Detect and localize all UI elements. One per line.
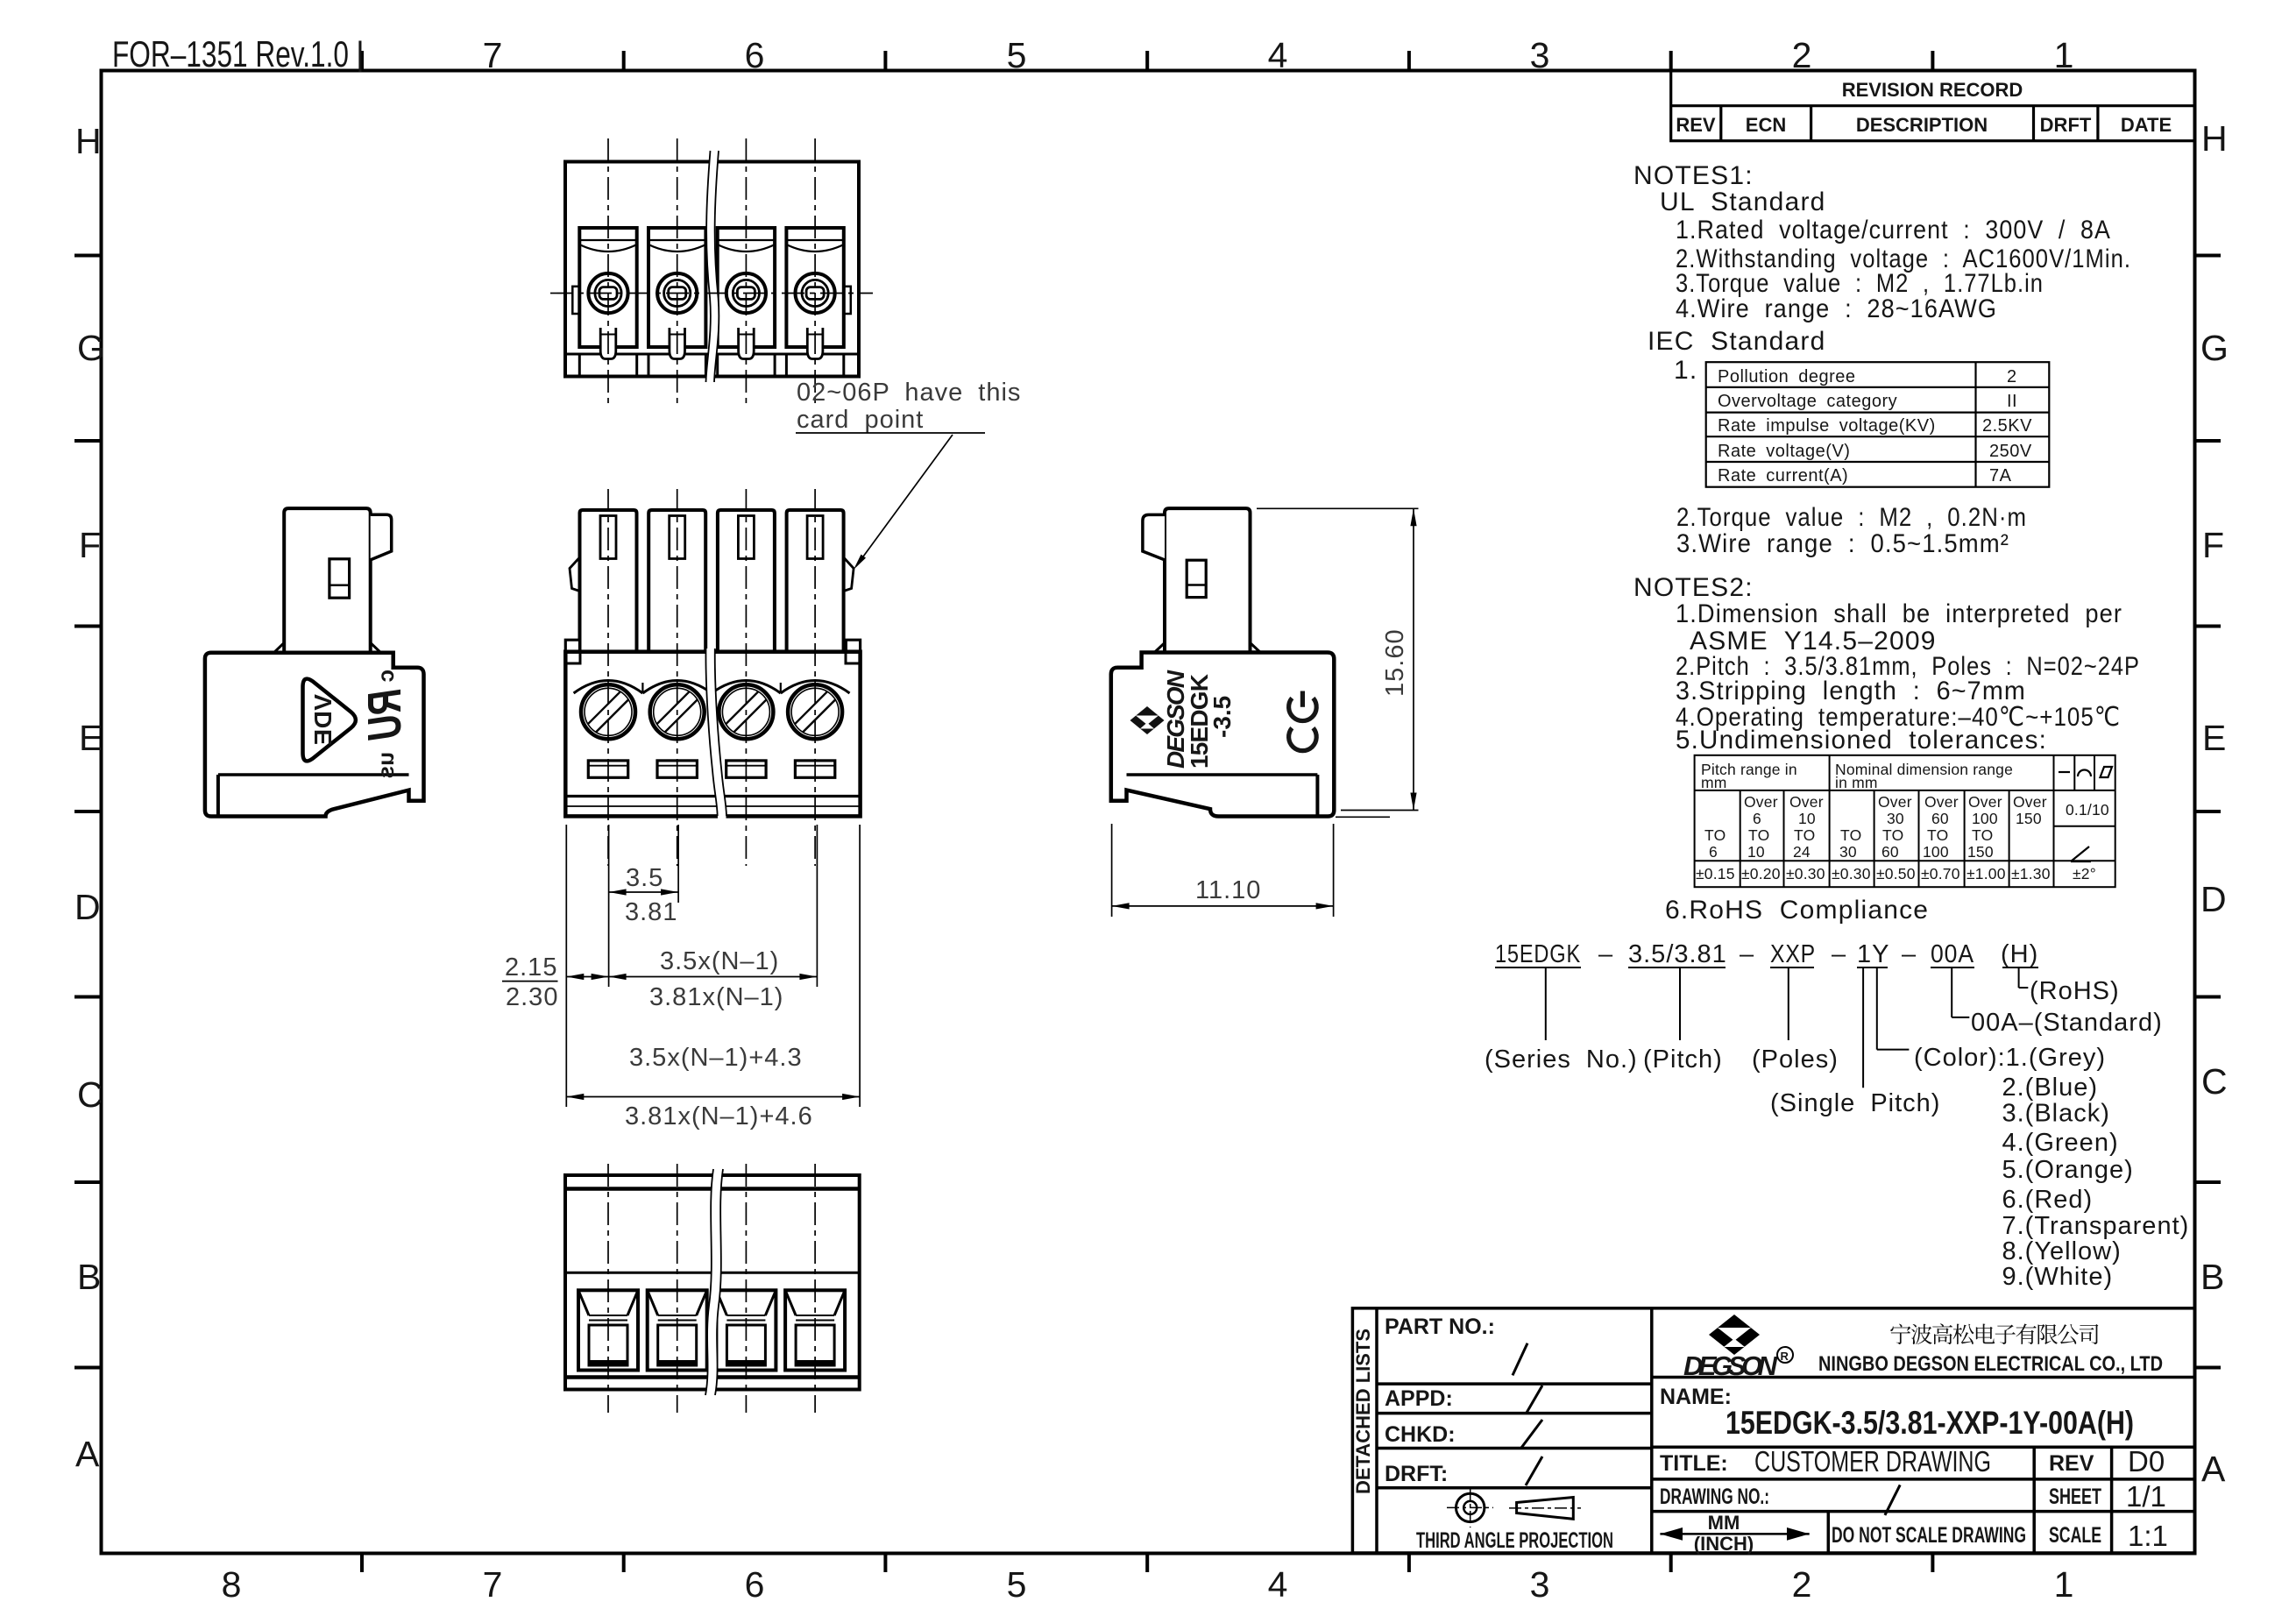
svg-text:TO: TO [1972, 826, 1993, 844]
svg-text:DESCRIPTION: DESCRIPTION [1856, 114, 1988, 136]
svg-text:2: 2 [1792, 1564, 1812, 1605]
svg-text:Pollution degree: Pollution degree [1718, 367, 1856, 386]
svg-text:7.(Transparent): 7.(Transparent) [2002, 1212, 2190, 1240]
svg-text:–: – [1902, 940, 1917, 968]
svg-text:Over: Over [1744, 793, 1778, 811]
svg-text:150: 150 [1967, 843, 1994, 861]
svg-text:3.81x(N–1): 3.81x(N–1) [649, 983, 783, 1011]
svg-text:Over: Over [1789, 793, 1824, 811]
svg-text:3: 3 [1530, 35, 1550, 75]
svg-text:±0.30: ±0.30 [1832, 865, 1871, 882]
svg-text:Overvoltage category: Overvoltage category [1718, 392, 1897, 411]
svg-text:TO: TO [1927, 826, 1948, 844]
svg-text:THIRD ANGLE PROJECTION: THIRD ANGLE PROJECTION [1416, 1528, 1613, 1553]
svg-text:NOTES1:: NOTES1: [1633, 161, 1754, 190]
svg-text:E: E [2202, 718, 2226, 758]
svg-text:60: 60 [1931, 810, 1949, 827]
svg-text:UL Standard: UL Standard [1660, 188, 1826, 216]
svg-text:TO: TO [1704, 826, 1726, 844]
svg-text:150: 150 [2016, 810, 2042, 827]
svg-text:7A: 7A [1989, 466, 2012, 485]
svg-text:15EDGK: 15EDGK [1495, 940, 1581, 968]
svg-text:G: G [2200, 328, 2229, 368]
svg-text:Over: Over [1878, 793, 1912, 811]
svg-text:±0.70: ±0.70 [1921, 865, 1960, 882]
svg-text:3.5: 3.5 [626, 864, 663, 892]
svg-text:B: B [2200, 1257, 2224, 1297]
svg-text:8.(Yellow): 8.(Yellow) [2002, 1237, 2122, 1265]
svg-text:6.RoHS Compliance: 6.RoHS Compliance [1665, 896, 1929, 925]
svg-text:2.5KV: 2.5KV [1982, 416, 2032, 436]
svg-text:6: 6 [745, 35, 765, 75]
svg-text:00A: 00A [1931, 940, 1974, 968]
svg-text:5: 5 [1007, 35, 1027, 75]
svg-text:TO: TO [1794, 826, 1815, 844]
svg-text:8: 8 [222, 1564, 242, 1605]
svg-text:DEGSON: DEGSON [1683, 1350, 1778, 1381]
svg-text:2.Torque value : M2 , 0.2: 2.Torque value : M2 , 0.2N·m [1676, 503, 2027, 532]
svg-text:Rate impulse voltage(KV): Rate impulse voltage(KV) [1718, 416, 1936, 436]
svg-text:TO: TO [1882, 826, 1903, 844]
svg-text:REV: REV [1676, 114, 1716, 136]
svg-text:F: F [2202, 525, 2224, 565]
svg-text:D: D [2200, 879, 2227, 919]
svg-text:±0.15: ±0.15 [1696, 865, 1735, 882]
svg-text:Rate current(A): Rate current(A) [1718, 466, 1848, 485]
svg-text:FOR–1351 Rev.1.0: FOR–1351 Rev.1.0 [112, 33, 349, 74]
svg-text:F: F [79, 525, 101, 565]
svg-text:C: C [2201, 1061, 2228, 1102]
svg-text:5: 5 [1007, 1564, 1027, 1605]
svg-text:100: 100 [1972, 810, 1998, 827]
svg-text:–: – [1598, 940, 1613, 968]
svg-text:±1.30: ±1.30 [2011, 865, 2051, 882]
svg-text:24: 24 [1793, 843, 1811, 861]
svg-text:00A–(Standard): 00A–(Standard) [1971, 1009, 2163, 1037]
svg-text:G: G [77, 328, 105, 368]
svg-text:REVISION RECORD: REVISION RECORD [1842, 79, 2023, 101]
svg-text:1.Dimension shall be interp: 1.Dimension shall be interpreted per [1676, 599, 2122, 628]
svg-text:30: 30 [1887, 810, 1904, 827]
svg-text:H: H [75, 121, 102, 161]
svg-text:card point: card point [797, 406, 924, 434]
svg-text:–: – [1832, 940, 1846, 968]
svg-text:10: 10 [1747, 843, 1765, 861]
svg-text:±0.20: ±0.20 [1741, 865, 1781, 882]
svg-text:3.81x(N–1)+4.6: 3.81x(N–1)+4.6 [625, 1102, 813, 1130]
svg-text:2.(Blue): 2.(Blue) [2002, 1074, 2099, 1102]
svg-text:30: 30 [1839, 843, 1857, 861]
svg-text:E: E [79, 718, 103, 758]
svg-text:±1.00: ±1.00 [1966, 865, 2006, 882]
svg-text:02~06P have this: 02~06P have this [797, 379, 1021, 407]
svg-text:7: 7 [483, 35, 503, 75]
svg-text:1.: 1. [1674, 356, 1697, 385]
svg-text:DETACHED LISTS: DETACHED LISTS [1352, 1329, 1374, 1494]
svg-text:1/1: 1/1 [2126, 1480, 2166, 1513]
svg-text:us: us [372, 752, 399, 778]
svg-text:SCALE: SCALE [2049, 1523, 2101, 1548]
svg-text:250V: 250V [1989, 442, 2032, 461]
svg-text:MM: MM [1708, 1512, 1740, 1534]
svg-text:2: 2 [2007, 367, 2017, 386]
svg-text:1:1: 1:1 [2128, 1520, 2168, 1552]
svg-text:NAME:: NAME: [1660, 1385, 1732, 1409]
svg-text:3.Stripping length : 6~7mm: 3.Stripping length : 6~7mm [1676, 677, 2026, 705]
svg-text:ECN: ECN [1746, 114, 1786, 136]
svg-text:CHKD:: CHKD: [1385, 1422, 1456, 1447]
svg-text:3.Wire range : 0.5~1.5mm²: 3.Wire range : 0.5~1.5mm² [1676, 529, 2009, 558]
svg-text:IEC Standard: IEC Standard [1648, 327, 1826, 356]
svg-text:SHEET: SHEET [2049, 1485, 2101, 1509]
svg-text:XXP: XXP [1770, 940, 1816, 968]
svg-text:NOTES2:: NOTES2: [1633, 573, 1754, 602]
svg-text:in mm: in mm [1835, 774, 1878, 791]
svg-text:D: D [74, 887, 101, 927]
svg-text:A: A [75, 1434, 100, 1474]
svg-text:3.5x(N–1)+4.3: 3.5x(N–1)+4.3 [629, 1044, 803, 1072]
svg-text:2.30: 2.30 [506, 983, 558, 1011]
svg-text:3.81: 3.81 [625, 898, 677, 926]
svg-text:4.(Green): 4.(Green) [2002, 1129, 2119, 1157]
svg-text:3: 3 [1530, 1564, 1550, 1605]
svg-text:5.Undimensioned tolerances:: 5.Undimensioned tolerances: [1676, 726, 2047, 755]
svg-text:TO: TO [1840, 826, 1861, 844]
svg-text:DRFT: DRFT [2040, 114, 2092, 136]
svg-text:H: H [2201, 118, 2228, 159]
svg-text:2.15: 2.15 [505, 953, 557, 982]
svg-text:-3.5: -3.5 [1208, 696, 1236, 738]
svg-text:REV: REV [2049, 1451, 2094, 1476]
svg-text:6: 6 [1753, 810, 1761, 827]
svg-text:6: 6 [745, 1564, 765, 1605]
svg-text:(Single Pitch): (Single Pitch) [1770, 1089, 1940, 1117]
svg-text:A: A [2201, 1449, 2226, 1489]
svg-text:10: 10 [1798, 810, 1816, 827]
svg-text:5.(Orange): 5.(Orange) [2002, 1156, 2134, 1184]
svg-text:100: 100 [1923, 843, 1949, 861]
svg-text:Rate voltage(V): Rate voltage(V) [1718, 442, 1850, 461]
svg-text:RU: RU [358, 689, 411, 741]
svg-text:7: 7 [483, 1564, 503, 1605]
svg-text:D0: D0 [2128, 1445, 2165, 1478]
svg-text:6: 6 [1709, 843, 1718, 861]
svg-text:TO: TO [1748, 826, 1769, 844]
svg-text:(INCH): (INCH) [1694, 1533, 1754, 1555]
svg-text:(RoHS): (RoHS) [2030, 977, 2120, 1005]
svg-text:15EDGK-3.5/3.81-XXP-1Y-00A(H): 15EDGK-3.5/3.81-XXP-1Y-00A(H) [1726, 1405, 2134, 1441]
svg-text:9.(White): 9.(White) [2002, 1263, 2114, 1291]
svg-text:3.5/3.81: 3.5/3.81 [1628, 940, 1727, 968]
svg-text:DRFT:: DRFT: [1385, 1462, 1448, 1486]
svg-text:3.5x(N–1): 3.5x(N–1) [660, 947, 779, 975]
svg-text:±2°: ±2° [2073, 865, 2096, 882]
svg-text:mm: mm [1701, 774, 1727, 791]
svg-text:0.1/10: 0.1/10 [2066, 801, 2109, 819]
svg-text:6.(Red): 6.(Red) [2002, 1186, 2094, 1214]
svg-text:DATE: DATE [2121, 114, 2172, 136]
svg-text:PART NO.:: PART NO.: [1385, 1315, 1495, 1339]
svg-text:CUSTOMER DRAWING: CUSTOMER DRAWING [1754, 1445, 1991, 1478]
svg-text:(Pitch): (Pitch) [1643, 1045, 1723, 1074]
svg-text:DRAWING NO.:: DRAWING NO.: [1660, 1485, 1769, 1509]
svg-text:15.60: 15.60 [1381, 628, 1409, 697]
svg-text:APPD:: APPD: [1385, 1386, 1453, 1411]
svg-text:Over: Over [2013, 793, 2047, 811]
svg-text:R: R [1781, 1350, 1789, 1363]
svg-text:4.Wire range : 28~16AWG: 4.Wire range : 28~16AWG [1676, 294, 1997, 323]
svg-text:(Series No.): (Series No.) [1485, 1045, 1638, 1074]
svg-text:60: 60 [1881, 843, 1899, 861]
svg-text:±0.30: ±0.30 [1786, 865, 1825, 882]
svg-text:(H): (H) [2001, 940, 2038, 968]
svg-text:II: II [2007, 392, 2017, 411]
svg-text:(Color):1.(Grey): (Color):1.(Grey) [1914, 1044, 2106, 1072]
svg-text:Over: Over [1924, 793, 1959, 811]
svg-text:B: B [77, 1257, 101, 1297]
svg-text:±0.50: ±0.50 [1876, 865, 1916, 882]
svg-text:4: 4 [1268, 1564, 1288, 1605]
svg-text:3.(Black): 3.(Black) [2002, 1100, 2110, 1128]
svg-text:1Y: 1Y [1857, 940, 1889, 968]
svg-text:DO NOT SCALE DRAWING: DO NOT SCALE DRAWING [1832, 1523, 2026, 1548]
svg-text:1.Rated voltage/current : 3: 1.Rated voltage/current : 300V / 8A [1676, 216, 2111, 245]
svg-text:4: 4 [1268, 35, 1288, 75]
svg-text:Over: Over [1968, 793, 2002, 811]
svg-text:C: C [77, 1074, 103, 1115]
svg-text:|: | [356, 36, 365, 73]
svg-text:c: c [372, 670, 399, 682]
svg-text:1: 1 [2054, 1564, 2074, 1605]
svg-text:TITLE:: TITLE: [1660, 1451, 1728, 1476]
svg-text:–: – [1740, 940, 1754, 968]
svg-text:11.10: 11.10 [1195, 876, 1261, 904]
svg-text:(Poles): (Poles) [1752, 1045, 1839, 1074]
svg-text:VDE: VDE [309, 694, 337, 746]
svg-text:NINGBO DEGSON ELECTRICAL CO.,: NINGBO DEGSON ELECTRICAL CO., LTD [1818, 1352, 2163, 1376]
